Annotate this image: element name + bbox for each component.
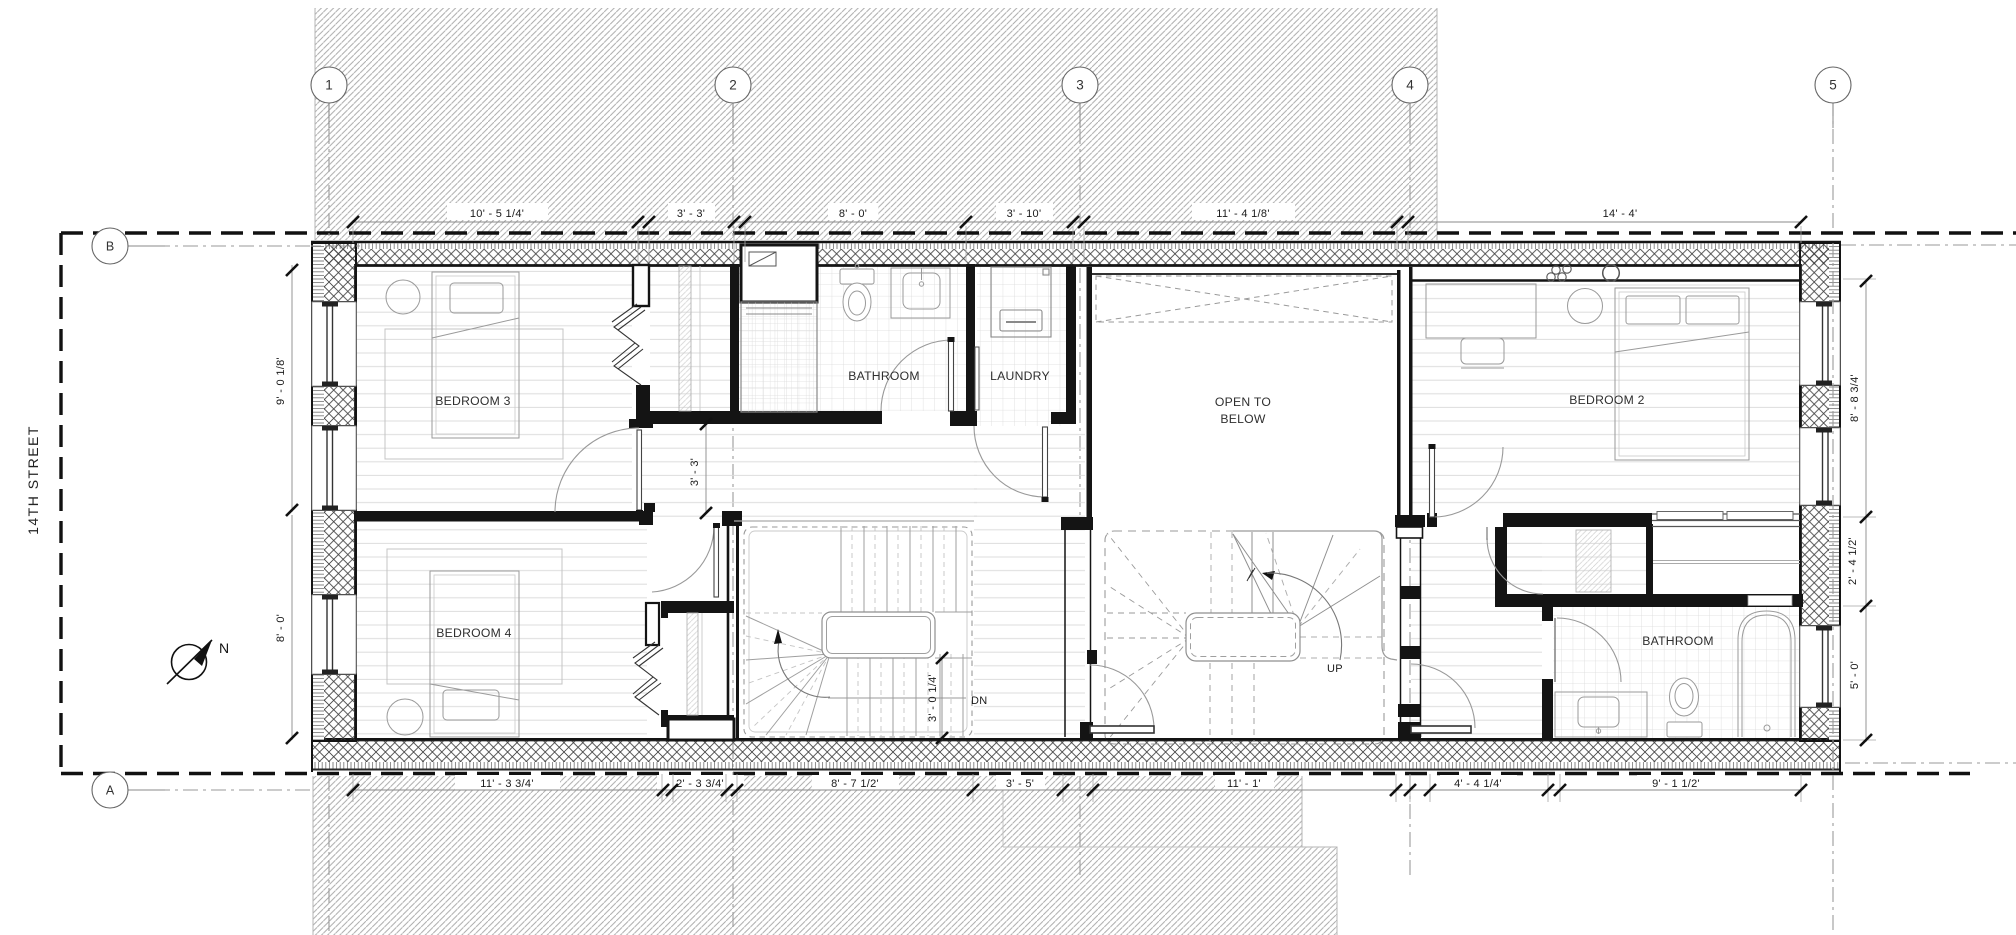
svg-text:3' - 0 1/4': 3' - 0 1/4' <box>927 674 939 722</box>
svg-text:UP: UP <box>1327 663 1343 675</box>
svg-text:3' - 3': 3' - 3' <box>689 458 701 486</box>
svg-text:4: 4 <box>1406 78 1414 93</box>
svg-text:DN: DN <box>971 695 988 707</box>
svg-text:9' - 1 1/2': 9' - 1 1/2' <box>1652 778 1700 790</box>
svg-text:LAUNDRY: LAUNDRY <box>990 369 1050 383</box>
svg-text:3: 3 <box>1076 78 1084 93</box>
svg-text:OPEN TO: OPEN TO <box>1215 395 1271 409</box>
svg-text:BATHROOM: BATHROOM <box>848 369 920 383</box>
svg-text:2: 2 <box>729 78 737 93</box>
svg-text:N: N <box>219 640 229 656</box>
svg-text:BELOW: BELOW <box>1220 412 1266 426</box>
svg-text:A: A <box>106 784 115 798</box>
svg-text:1: 1 <box>325 78 333 93</box>
svg-text:BEDROOM 3: BEDROOM 3 <box>435 394 510 408</box>
svg-text:11' - 4 1/8': 11' - 4 1/8' <box>1216 208 1269 220</box>
svg-text:3' - 3': 3' - 3' <box>677 208 705 220</box>
svg-text:11' - 3 3/4': 11' - 3 3/4' <box>480 778 533 790</box>
svg-text:4' - 4 1/4': 4' - 4 1/4' <box>1454 778 1502 790</box>
svg-text:10' - 5 1/4': 10' - 5 1/4' <box>470 208 524 220</box>
svg-text:B: B <box>106 240 114 254</box>
svg-text:14TH STREET: 14TH STREET <box>25 425 41 535</box>
svg-text:5: 5 <box>1829 78 1837 93</box>
svg-text:9' - 0 1/8': 9' - 0 1/8' <box>275 357 287 405</box>
svg-text:2' - 4 1/2': 2' - 4 1/2' <box>1847 537 1859 585</box>
svg-text:8' - 7 1/2': 8' - 7 1/2' <box>831 778 879 790</box>
svg-text:11' - 1': 11' - 1' <box>1227 778 1261 790</box>
svg-text:2' - 3 3/4': 2' - 3 3/4' <box>676 778 724 790</box>
svg-text:BATHROOM: BATHROOM <box>1642 634 1714 648</box>
svg-text:3' - 5': 3' - 5' <box>1006 778 1034 790</box>
svg-text:BEDROOM 4: BEDROOM 4 <box>436 626 511 640</box>
svg-text:14' - 4': 14' - 4' <box>1603 208 1638 220</box>
svg-text:BEDROOM 2: BEDROOM 2 <box>1569 393 1644 407</box>
svg-text:8' - 0': 8' - 0' <box>275 614 287 642</box>
svg-text:8' - 0': 8' - 0' <box>839 208 867 220</box>
svg-text:3' - 10': 3' - 10' <box>1007 208 1042 220</box>
svg-text:5' - 0': 5' - 0' <box>1849 661 1861 689</box>
svg-text:8' - 8 3/4': 8' - 8 3/4' <box>1849 374 1861 422</box>
